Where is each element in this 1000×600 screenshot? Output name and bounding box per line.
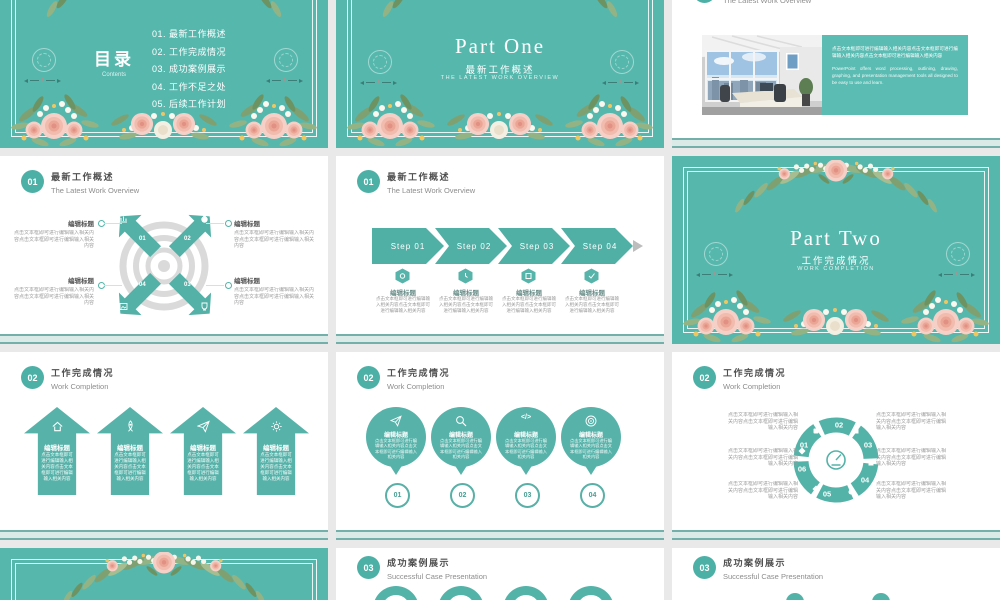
slide-part-two-cover[interactable]: Part Two 工作完成情况 WORK COMPLETION ♥ ♥ bbox=[672, 156, 1000, 344]
toc-item[interactable]: 03. 成功案例展示 bbox=[152, 61, 226, 79]
arrow-title: 编辑标题 bbox=[97, 442, 163, 452]
section-title-en: The Latest Work Overview bbox=[723, 0, 811, 5]
callout-top-left: 编辑标题 点击文本框即可进行编辑输入相关内容点击文本框即可进行编辑输入相关内容 bbox=[14, 218, 94, 250]
section-title-zh: 工作完成情况 bbox=[723, 366, 786, 379]
balloon-body: 点击文本框即可进行编辑输入相关内容点击文本框即可进行编辑输入相关内容 bbox=[504, 438, 548, 463]
section-number-badge: 03 bbox=[693, 556, 716, 579]
section-number-badge: 03 bbox=[357, 556, 380, 579]
connector-dot bbox=[225, 282, 232, 289]
hexagon-icon bbox=[584, 268, 599, 284]
step-body: 点击文本框即可进行编辑输入相关内容点击文本框即可进行编辑输入相关内容 bbox=[437, 296, 495, 313]
balloon-panel: 编辑标题 点击文本框即可进行编辑输入相关内容点击文本框即可进行编辑输入相关内容 bbox=[561, 407, 621, 467]
case-ring bbox=[373, 586, 419, 600]
slide-photo-intro[interactable]: 01 最新工作概述 The Latest Work Overview bbox=[672, 0, 1000, 148]
section-header: 02 工作完成情况 Work Completion bbox=[21, 366, 114, 391]
arrow-heart-divider: ♥ bbox=[266, 78, 303, 83]
paper-plane-icon bbox=[390, 415, 402, 427]
arrow-number: 03 bbox=[184, 282, 191, 288]
balloon-tail bbox=[584, 464, 598, 482]
slide-footer-band bbox=[336, 530, 664, 540]
balloon-number-ring: 03 bbox=[515, 483, 540, 508]
section-number-badge: 02 bbox=[357, 366, 380, 389]
arrow-title: 编辑标题 bbox=[170, 442, 236, 452]
picture-icon bbox=[119, 302, 128, 311]
flow-arrowhead-icon bbox=[633, 240, 649, 252]
step-chevron: Step 03 bbox=[498, 228, 570, 264]
floral-cluster-bottom bbox=[0, 92, 328, 148]
rocket-icon bbox=[124, 420, 137, 433]
callout-body: 点击文本框即可进行编辑输入相关内容点击文本框即可进行编辑输入相关内容 bbox=[234, 287, 314, 307]
chart-icon bbox=[119, 214, 128, 223]
connector-line bbox=[104, 223, 122, 224]
slide-toc-cover[interactable]: 目录 Contents 01. 最新工作概述 02. 工作完成情况 03. 成功… bbox=[0, 0, 328, 148]
section-title-zh: 成功案例展示 bbox=[723, 556, 823, 569]
puzzle-icon bbox=[814, 429, 819, 434]
step-body: 点击文本框即可进行编辑输入相关内容点击文本框即可进行编辑输入相关内容 bbox=[563, 296, 621, 313]
template-preview-grid: 目录 Contents 01. 最新工作概述 02. 工作完成情况 03. 成功… bbox=[0, 0, 1000, 600]
callout-title: 编辑标题 bbox=[14, 275, 94, 285]
section-title-en: Work Completion bbox=[723, 382, 786, 391]
wreath-emblem-icon bbox=[32, 48, 56, 72]
step-chevron: Step 02 bbox=[435, 228, 507, 264]
section-title-zh: 最新工作概述 bbox=[51, 170, 139, 183]
arrow-number: 02 bbox=[184, 236, 191, 242]
slide-part-three-cover[interactable] bbox=[0, 548, 328, 600]
arrow-body: 点击文本框即可进行编辑输入相关内容点击文本框即可进行编辑输入相关内容 bbox=[113, 452, 147, 488]
section-number-badge: 02 bbox=[21, 366, 44, 389]
wreath-emblem-icon bbox=[274, 48, 298, 72]
trophy-icon bbox=[200, 302, 209, 311]
section-title-en: Successful Case Presentation bbox=[723, 572, 823, 581]
slide-footer-band bbox=[336, 334, 664, 344]
slide-donut-diagram[interactable]: 02 工作完成情况 Work Completion 01 02 03 04 05… bbox=[672, 352, 1000, 540]
case-ring bbox=[568, 586, 614, 600]
section-header: 02 工作完成情况 Work Completion bbox=[357, 366, 450, 391]
balloon-panel: 编辑标题 点击文本框即可进行编辑输入相关内容点击文本框即可进行编辑输入相关内容 bbox=[431, 407, 491, 467]
arrow-heart-divider: ♥ bbox=[24, 78, 61, 83]
toc-title-block: 目录 Contents bbox=[86, 45, 142, 78]
case-ring bbox=[503, 586, 549, 600]
slide-case-circles[interactable]: 03 成功案例展示 Successful Case Presentation bbox=[672, 548, 1000, 600]
segment-number: 06 bbox=[798, 465, 806, 474]
balloon-body: 点击文本框即可进行编辑输入相关内容点击文本框即可进行编辑输入相关内容 bbox=[439, 438, 483, 463]
arrow-heart-divider: ♥ bbox=[360, 80, 397, 85]
moneybag-icon bbox=[200, 214, 209, 223]
section-title-en: The Latest Work Overview bbox=[387, 186, 475, 195]
arrow-heart-divider: ♥ bbox=[602, 80, 639, 85]
case-circle bbox=[786, 593, 804, 600]
callout-bottom-left: 编辑标题 点击文本框即可进行编辑输入相关内容点击文本框即可进行编辑输入相关内容 bbox=[14, 275, 94, 307]
floral-garland-top bbox=[336, 0, 664, 34]
paper-plane-icon bbox=[197, 420, 210, 433]
callout-top-right: 编辑标题 点击文本框即可进行编辑输入相关内容点击文本框即可进行编辑输入相关内容 bbox=[234, 218, 314, 250]
callout-title: 编辑标题 bbox=[14, 218, 94, 228]
balloon-tail bbox=[389, 464, 403, 482]
section-header: 03 成功案例展示 Successful Case Presentation bbox=[357, 556, 487, 581]
balloon-number-ring: 02 bbox=[450, 483, 475, 508]
step-body: 点击文本框即可进行编辑输入相关内容点击文本框即可进行编辑输入相关内容 bbox=[374, 296, 432, 313]
slide-part-one-cover[interactable]: Part One 最新工作概述 THE LATEST WORK OVERVIEW… bbox=[336, 0, 664, 148]
arrow-panel: 编辑标题 点击文本框即可进行编辑输入相关内容点击文本框即可进行编辑输入相关内容 bbox=[24, 407, 90, 495]
arrow-panel: 编辑标题 点击文本框即可进行编辑输入相关内容点击文本框即可进行编辑输入相关内容 bbox=[243, 407, 309, 495]
balloon-tail bbox=[519, 464, 533, 482]
balloon-number-ring: 01 bbox=[385, 483, 410, 508]
hexagon-icon bbox=[395, 268, 410, 284]
section-title-zh: 工作完成情况 bbox=[51, 366, 114, 379]
balloon-tail bbox=[454, 464, 468, 482]
wreath-emblem-icon bbox=[368, 50, 392, 74]
arrow-number: 04 bbox=[139, 282, 146, 288]
callout-body: 点击文本框即可进行编辑输入相关内容点击文本框即可进行编辑输入相关内容 bbox=[234, 230, 314, 250]
arrow-panel: 编辑标题 点击文本框即可进行编辑输入相关内容点击文本框即可进行编辑输入相关内容 bbox=[97, 407, 163, 495]
search-icon bbox=[455, 415, 467, 427]
section-title-en: Work Completion bbox=[51, 382, 114, 391]
section-title-zh: 工作完成情况 bbox=[387, 366, 450, 379]
sitemap-icon bbox=[869, 461, 874, 466]
case-ring bbox=[438, 586, 484, 600]
wreath-emblem-icon bbox=[704, 242, 728, 266]
connector-line bbox=[206, 285, 224, 286]
slide-balloons[interactable]: 02 工作完成情况 Work Completion 编辑标题 点击文本框即可进行… bbox=[336, 352, 664, 540]
connector-line bbox=[206, 223, 224, 224]
balloon-number-ring: 04 bbox=[580, 483, 605, 508]
slide-case-rings[interactable]: 03 成功案例展示 Successful Case Presentation bbox=[336, 548, 664, 600]
toc-subtitle: Contents bbox=[86, 72, 142, 78]
cube-icon bbox=[854, 429, 859, 434]
section-number-badge: 01 bbox=[21, 170, 44, 193]
connector-line bbox=[104, 285, 122, 286]
slide-steps-diagram[interactable]: 01 最新工作概述 The Latest Work Overview Step … bbox=[336, 156, 664, 344]
case-circle bbox=[872, 593, 890, 600]
callout-title: 编辑标题 bbox=[234, 218, 314, 228]
intro-text-box: 点击文本框即可进行编辑输入相关内容点击文本框即可进行编辑输入相关内容点击文本框即… bbox=[822, 35, 968, 115]
segment-number: 03 bbox=[864, 441, 872, 450]
target-icon bbox=[585, 415, 597, 427]
donut-callout: 点击文本框即可进行编辑输入相关内容点击文本框即可进行编辑输入相关内容 bbox=[876, 448, 948, 468]
arrow-number: 01 bbox=[139, 236, 146, 242]
intro-body-en: PowerPoint offers word processing, outli… bbox=[832, 65, 958, 86]
floral-garland-top bbox=[0, 552, 328, 600]
slide-target-diagram[interactable]: 01 最新工作概述 The Latest Work Overview 01 02… bbox=[0, 156, 328, 344]
callout-body: 点击文本框即可进行编辑输入相关内容点击文本框即可进行编辑输入相关内容 bbox=[14, 230, 94, 250]
slide-up-arrows[interactable]: 02 工作完成情况 Work Completion 编辑标题 点击文本框即可进行… bbox=[0, 352, 328, 540]
balloon-panel: 编辑标题 点击文本框即可进行编辑输入相关内容点击文本框即可进行编辑输入相关内容 bbox=[366, 407, 426, 467]
floral-cluster-bottom bbox=[336, 92, 664, 148]
callout-body: 点击文本框即可进行编辑输入相关内容点击文本框即可进行编辑输入相关内容 bbox=[14, 287, 94, 307]
arrow-title: 编辑标题 bbox=[243, 442, 309, 452]
wreath-emblem-icon bbox=[946, 242, 970, 266]
callout-title: 编辑标题 bbox=[234, 275, 314, 285]
hexagon-icon bbox=[521, 268, 536, 284]
intro-body-zh: 点击文本框即可进行编辑输入相关内容点击文本框即可进行编辑输入相关内容点击文本框即… bbox=[832, 45, 958, 59]
donut-callout: 点击文本框即可进行编辑输入相关内容点击文本框即可进行编辑输入相关内容 bbox=[724, 448, 798, 468]
section-title-en: Work Completion bbox=[387, 382, 450, 391]
home-icon bbox=[51, 420, 64, 433]
code-icon: </> bbox=[496, 414, 556, 421]
arrow-title: 编辑标题 bbox=[24, 442, 90, 452]
office-photo bbox=[702, 35, 822, 115]
section-title-en: Successful Case Presentation bbox=[387, 572, 487, 581]
arrow-body: 点击文本框即可进行编辑输入相关内容点击文本框即可进行编辑输入相关内容 bbox=[259, 452, 293, 488]
connector-dot bbox=[225, 220, 232, 227]
balloon-body: 点击文本框即可进行编辑输入相关内容点击文本框即可进行编辑输入相关内容 bbox=[569, 438, 613, 463]
arrow-panel: 编辑标题 点击文本框即可进行编辑输入相关内容点击文本框即可进行编辑输入相关内容 bbox=[170, 407, 236, 495]
slide-footer-band bbox=[672, 530, 1000, 540]
section-header: 02 工作完成情况 Work Completion bbox=[693, 366, 786, 391]
toc-title: 目录 bbox=[86, 45, 142, 70]
section-header: 01 最新工作概述 The Latest Work Overview bbox=[357, 170, 475, 195]
gear-icon bbox=[270, 420, 283, 433]
donut-callout: 点击文本框即可进行编辑输入相关内容点击文本框即可进行编辑输入相关内容 bbox=[876, 412, 948, 432]
segment-number: 02 bbox=[835, 421, 843, 430]
section-title-zh: 最新工作概述 bbox=[387, 170, 475, 183]
balloon-panel: </> 编辑标题 点击文本框即可进行编辑输入相关内容点击文本框即可进行编辑输入相… bbox=[496, 407, 556, 467]
truck-icon bbox=[849, 490, 854, 495]
step-body: 点击文本框即可进行编辑输入相关内容点击文本框即可进行编辑输入相关内容 bbox=[500, 296, 558, 313]
callout-bottom-right: 编辑标题 点击文本框即可进行编辑输入相关内容点击文本框即可进行编辑输入相关内容 bbox=[234, 275, 314, 307]
section-number-badge: 01 bbox=[693, 0, 716, 3]
section-header: 03 成功案例展示 Successful Case Presentation bbox=[693, 556, 823, 581]
arrow-heart-divider: ♥ bbox=[696, 272, 733, 277]
donut-callout: 点击文本框即可进行编辑输入相关内容点击文本框即可进行编辑输入相关内容 bbox=[724, 412, 798, 432]
slide-footer-band bbox=[672, 138, 1000, 148]
arrow-body: 点击文本框即可进行编辑输入相关内容点击文本框即可进行编辑输入相关内容 bbox=[186, 452, 220, 488]
segment-number: 04 bbox=[861, 476, 869, 485]
section-title-zh: 成功案例展示 bbox=[387, 556, 487, 569]
toc-item[interactable]: 02. 工作完成情况 bbox=[152, 44, 226, 62]
section-header: 01 最新工作概述 The Latest Work Overview bbox=[693, 0, 811, 5]
section-title-en: The Latest Work Overview bbox=[51, 186, 139, 195]
hexagon-icon bbox=[458, 268, 473, 284]
toc-item[interactable]: 01. 最新工作概述 bbox=[152, 26, 226, 44]
segment-number: 05 bbox=[823, 490, 831, 499]
section-number-badge: 02 bbox=[693, 366, 716, 389]
donut-callout: 点击文本框即可进行编辑输入相关内容点击文本框即可进行编辑输入相关内容 bbox=[876, 481, 948, 501]
wreath-emblem-icon bbox=[610, 50, 634, 74]
step-chevron: Step 04 bbox=[561, 228, 633, 264]
arrow-heart-divider: ♥ bbox=[938, 272, 975, 277]
floral-cluster-bottom bbox=[672, 288, 1000, 344]
step-chevron: Step 01 bbox=[372, 228, 444, 264]
slide-footer-band bbox=[0, 334, 328, 344]
arrow-body: 点击文本框即可进行编辑输入相关内容点击文本框即可进行编辑输入相关内容 bbox=[40, 452, 74, 488]
floral-garland-top bbox=[672, 160, 1000, 222]
section-number-badge: 01 bbox=[357, 170, 380, 193]
donut-callout: 点击文本框即可进行编辑输入相关内容点击文本框即可进行编辑输入相关内容 bbox=[724, 481, 798, 501]
slide-footer-band bbox=[0, 530, 328, 540]
balloon-body: 点击文本框即可进行编辑输入相关内容点击文本框即可进行编辑输入相关内容 bbox=[374, 438, 418, 463]
section-header: 01 最新工作概述 The Latest Work Overview bbox=[21, 170, 139, 195]
